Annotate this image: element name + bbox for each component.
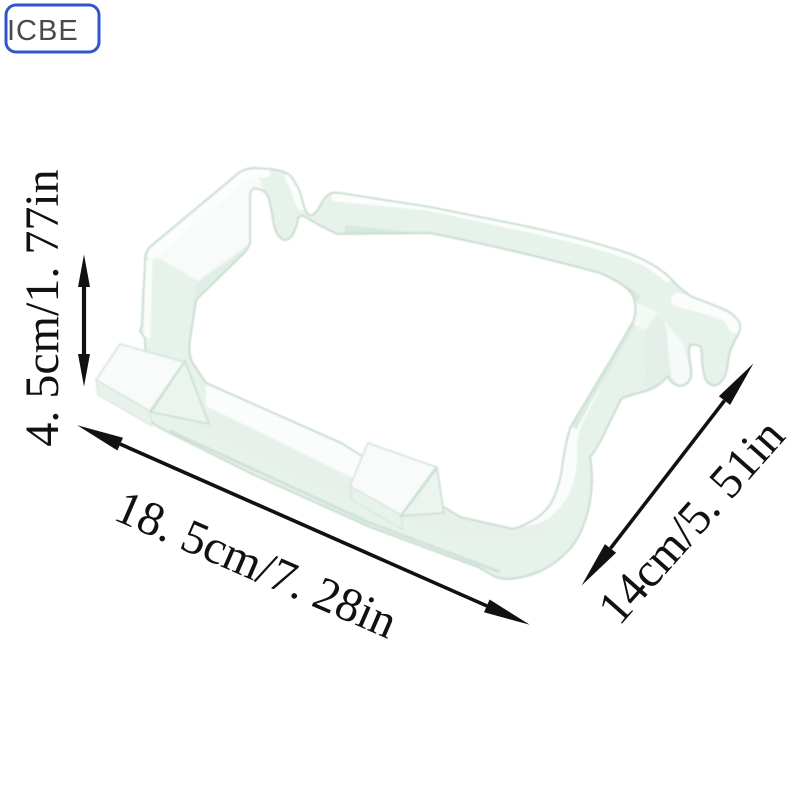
svg-text:4. 5cm/1. 77in: 4. 5cm/1. 77in [16, 169, 69, 446]
svg-text:ICBE: ICBE [7, 15, 79, 47]
